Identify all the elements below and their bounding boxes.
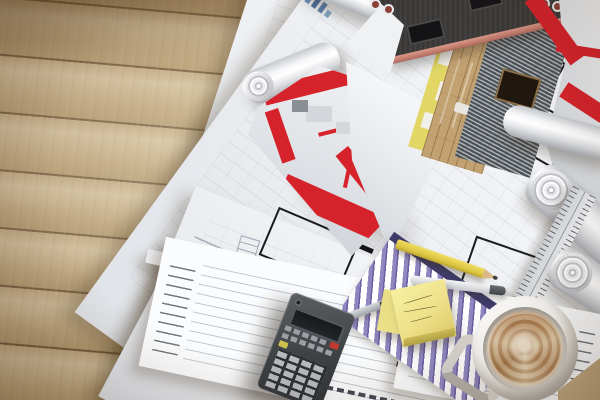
calculator-keypad	[265, 348, 328, 400]
coffee-cup	[472, 296, 578, 400]
chimney-vent	[385, 6, 392, 13]
model-furniture-dark-unit	[292, 100, 308, 112]
model-red-wall-left	[265, 108, 296, 164]
photo-architectural-model-scene	[0, 0, 600, 400]
bar	[324, 10, 332, 19]
roof-skylight	[466, 0, 503, 12]
calculator-round-button	[294, 298, 303, 307]
model-window-opening	[494, 68, 541, 110]
handwriting-line	[410, 316, 432, 323]
handwriting-line	[403, 306, 437, 313]
roof-skylight	[406, 18, 446, 46]
cappuccino-swirl	[487, 311, 563, 387]
model-furniture-sofa	[306, 106, 332, 122]
chimney-vent	[372, 1, 379, 8]
pen-tip	[489, 285, 506, 296]
handwriting-line	[404, 294, 433, 304]
